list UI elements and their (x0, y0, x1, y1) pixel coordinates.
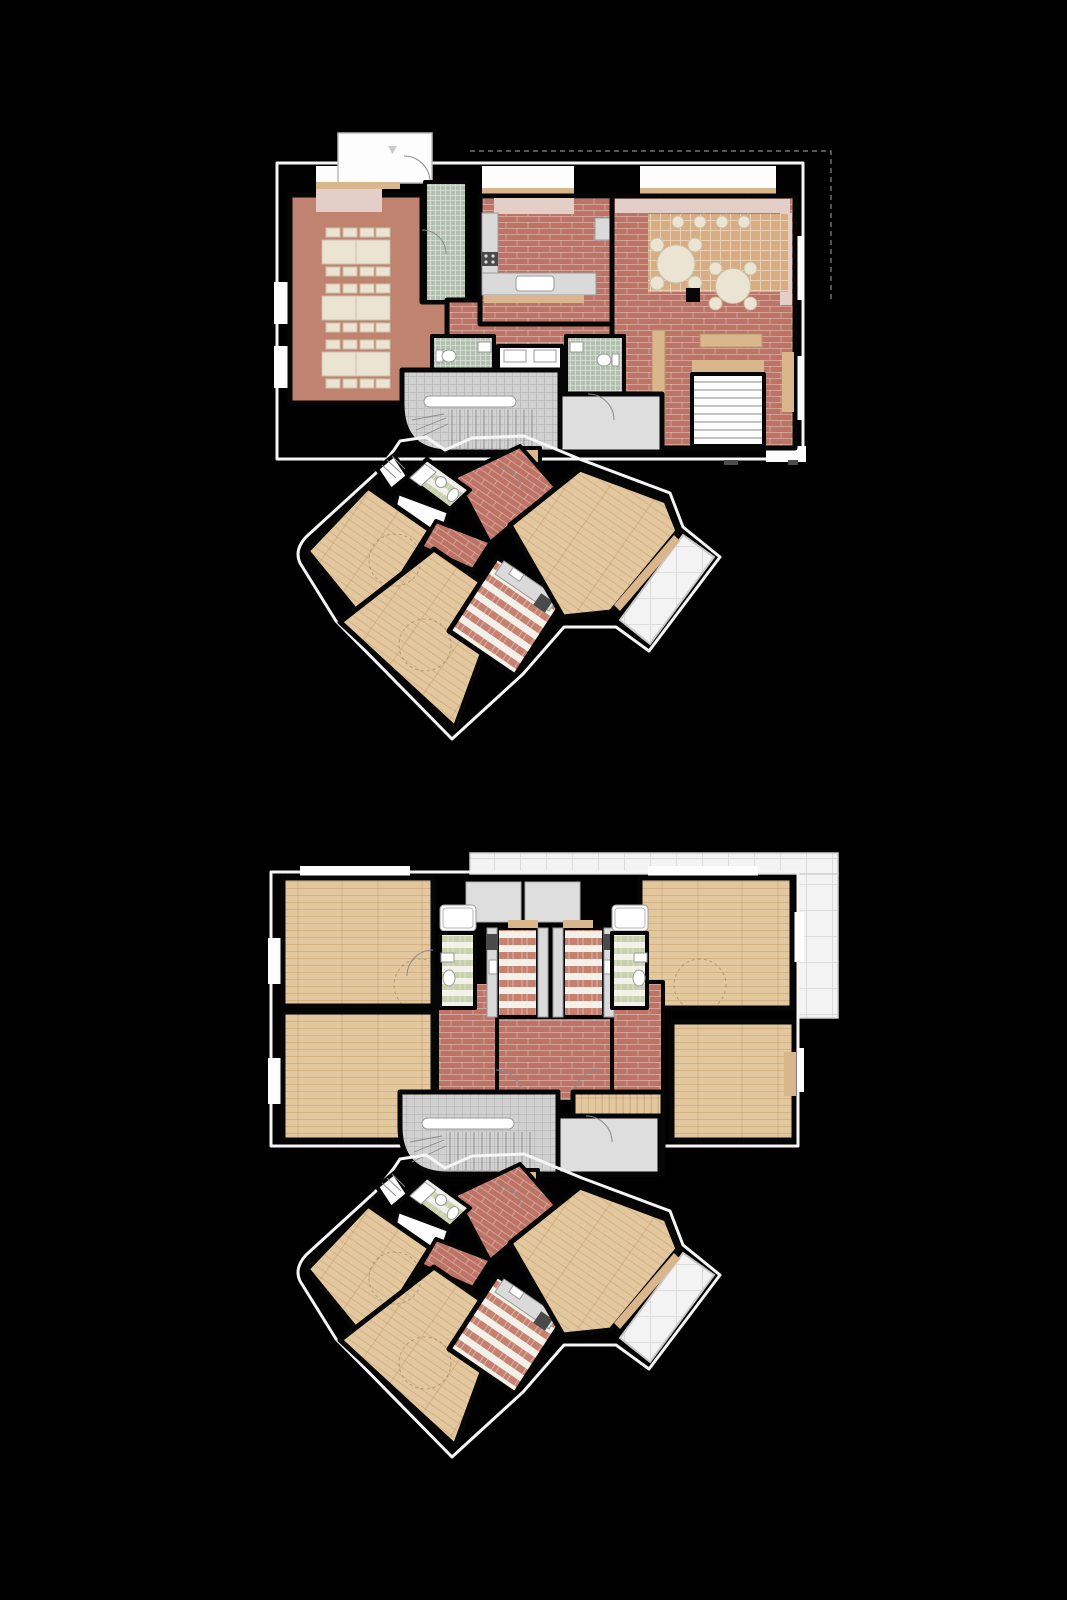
toilet (443, 970, 455, 986)
stove (482, 252, 498, 266)
upper-floor-plan (268, 853, 838, 1186)
toilet (597, 354, 611, 366)
sink (634, 953, 647, 962)
window (482, 166, 574, 188)
kitchen-bench (484, 295, 584, 303)
sink (504, 350, 526, 362)
ground-floor-plan (274, 133, 831, 465)
kitchen-counter (538, 928, 548, 1017)
floor-plans-canvas (0, 0, 1067, 1600)
stool (738, 216, 750, 228)
sink (534, 350, 556, 362)
stove (487, 934, 497, 950)
hallway (497, 1017, 612, 1102)
window-sill (482, 188, 574, 194)
sink-island (516, 276, 554, 291)
stool (716, 216, 728, 228)
exterior-mark (788, 460, 798, 465)
exterior-mark (724, 460, 738, 465)
entry-vestibule (338, 133, 432, 183)
sink (489, 960, 497, 974)
bedroom-top-left (283, 878, 433, 1006)
window (640, 166, 776, 188)
sink (570, 342, 583, 352)
bathroom-left (440, 933, 475, 1008)
bathtub (612, 905, 648, 931)
kitchen-left (497, 928, 538, 1017)
ground-floor-wing (298, 436, 720, 739)
stool (694, 216, 706, 228)
window-sill (563, 920, 593, 928)
stool (672, 216, 684, 228)
window-bench (784, 1052, 796, 1096)
staircase (692, 374, 764, 446)
stair-top-landing (692, 360, 764, 372)
column (686, 288, 700, 302)
bathtub (440, 905, 476, 931)
sink (478, 342, 491, 352)
upper-floor-wing (298, 1154, 720, 1457)
kitchen-right (563, 928, 604, 1017)
floor-plan-drawing (0, 0, 1067, 1600)
kitchen-counter (553, 928, 563, 1017)
window-sill (316, 182, 400, 189)
bench (700, 334, 762, 347)
entry-corridor (425, 182, 467, 302)
sink (441, 953, 454, 962)
kitchen (480, 196, 612, 324)
toilet (612, 354, 619, 366)
canopy (525, 882, 580, 922)
toilet (633, 970, 645, 986)
dining-bench (316, 189, 382, 212)
window-bench (782, 352, 794, 412)
window-sill (640, 188, 776, 194)
window-sill (508, 920, 538, 928)
kitchen-bench (494, 198, 574, 214)
toilet (442, 350, 456, 362)
bedroom-mid-right (672, 1022, 794, 1140)
lounge-bench (615, 199, 790, 213)
